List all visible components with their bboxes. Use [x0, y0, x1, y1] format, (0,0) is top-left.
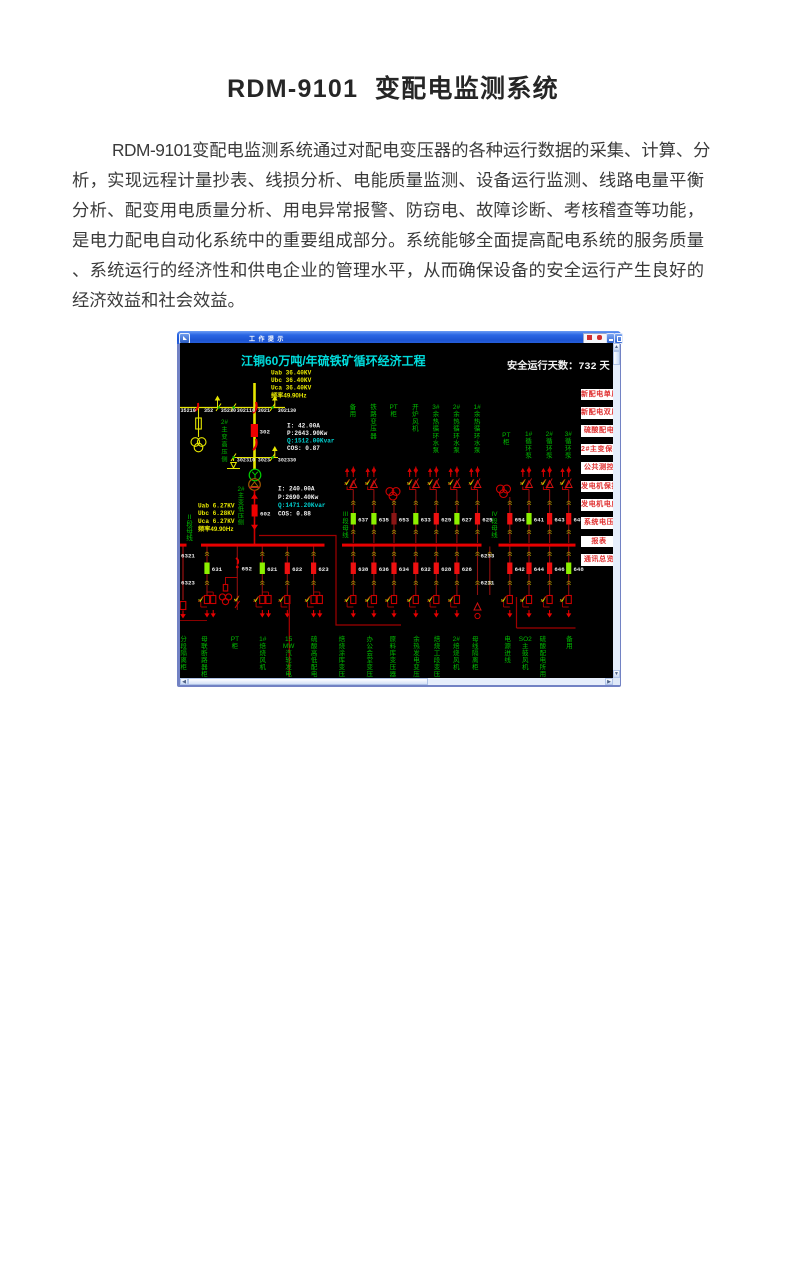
- svg-text:644: 644: [534, 566, 545, 573]
- svg-text:1#余热循环水泵: 1#余热循环水泵: [473, 404, 481, 454]
- svg-text:Q:1471.20Kvar: Q:1471.20Kvar: [278, 502, 326, 509]
- svg-text:PT柜: PT柜: [389, 404, 397, 418]
- svg-text:3023: 3023: [258, 458, 270, 464]
- svg-text:648: 648: [574, 566, 585, 573]
- svg-text:IV段母线: IV段母线: [491, 511, 498, 539]
- svg-text:P:2643.90Kw: P:2643.90Kw: [287, 430, 328, 437]
- svg-text:1#循环泵: 1#循环泵: [525, 431, 533, 460]
- svg-text:35210: 35210: [181, 408, 196, 414]
- svg-text:653: 653: [399, 517, 410, 524]
- svg-text:643: 643: [554, 517, 565, 524]
- svg-text:629: 629: [441, 517, 452, 524]
- svg-text:III段母线: III段母线: [342, 511, 349, 539]
- svg-text:6231: 6231: [481, 580, 495, 587]
- svg-text:626: 626: [462, 566, 473, 573]
- svg-text:江铜60万吨/年硫铁矿循环经济工程: 江铜60万吨/年硫铁矿循环经济工程: [241, 353, 426, 368]
- svg-text:641: 641: [534, 517, 545, 524]
- svg-text:645: 645: [574, 517, 585, 524]
- svg-text:631: 631: [212, 566, 223, 573]
- svg-text:302310: 302310: [237, 458, 255, 464]
- svg-text:余热发电变压: 余热发电变压: [413, 634, 420, 678]
- svg-text:铁路变压器: 铁路变压器: [370, 402, 377, 440]
- svg-text:637: 637: [358, 517, 369, 524]
- svg-text:35230: 35230: [221, 408, 236, 414]
- svg-text:Uab 36.40KV: Uab 36.40KV: [271, 370, 312, 377]
- svg-text:635: 635: [379, 517, 390, 524]
- svg-text:642: 642: [515, 566, 526, 573]
- svg-text:硫酸配电所用: 硫酸配电所用: [540, 634, 547, 678]
- svg-text:原料库变压器: 原料库变压器: [390, 635, 397, 678]
- svg-text:6233: 6233: [481, 553, 495, 560]
- svg-text:633: 633: [421, 517, 432, 524]
- svg-text:2#循环泵: 2#循环泵: [546, 431, 554, 460]
- svg-text:焙烧工段变压: 焙烧工段变压: [434, 634, 441, 678]
- svg-text:Uca 36.40KV: Uca 36.40KV: [271, 385, 312, 392]
- svg-text:2#主变高压侧: 2#主变高压侧: [221, 419, 228, 464]
- svg-text:Ubc 36.40KV: Ubc 36.40KV: [271, 377, 312, 384]
- svg-text:352: 352: [204, 408, 213, 414]
- svg-text:654: 654: [515, 517, 526, 524]
- svg-text:2#焙烧风机: 2#焙烧风机: [453, 636, 461, 671]
- svg-text:2#主变低压侧: 2#主变低压侧: [238, 486, 245, 527]
- svg-text:焙烧涂库变压: 焙烧涂库变压: [339, 634, 346, 678]
- svg-text:电源进线: 电源进线: [504, 634, 511, 664]
- svg-text:分段隔离柜: 分段隔离柜: [180, 634, 187, 671]
- svg-text:6323: 6323: [181, 580, 195, 587]
- svg-text:646: 646: [554, 566, 565, 573]
- svg-text:开炉风机: 开炉风机: [412, 403, 419, 433]
- svg-text:II段母线: II段母线: [186, 514, 193, 542]
- svg-text:625: 625: [482, 517, 493, 524]
- svg-text:Uca 6.27KV: Uca 6.27KV: [198, 518, 235, 525]
- svg-text:636: 636: [379, 566, 390, 573]
- svg-text:634: 634: [399, 566, 410, 573]
- svg-text:621: 621: [267, 566, 278, 573]
- svg-text:备用: 备用: [566, 634, 573, 650]
- svg-text:I: 240.00A: I: 240.00A: [278, 486, 315, 493]
- svg-text:母联断路器柜: 母联断路器柜: [201, 635, 208, 678]
- svg-text:安全运行天数：732 天: 安全运行天数：732 天: [507, 359, 610, 373]
- svg-text:P:2690.40Kw: P:2690.40Kw: [278, 494, 319, 501]
- svg-text:Uab 6.27KV: Uab 6.27KV: [198, 503, 235, 510]
- svg-text:638: 638: [358, 566, 369, 573]
- svg-text:硫酸高低配电: 硫酸高低配电: [311, 634, 318, 678]
- svg-text:备用: 备用: [350, 402, 357, 418]
- svg-text:15MW汽轮发电: 15MW汽轮发电: [283, 636, 295, 678]
- svg-text:Ubc 6.28KV: Ubc 6.28KV: [198, 510, 235, 517]
- svg-text:3021: 3021: [258, 408, 270, 414]
- svg-text:COS: 0.87: COS: 0.87: [287, 445, 320, 452]
- svg-text:622: 622: [292, 566, 303, 573]
- svg-text:2#余热循环水泵: 2#余热循环水泵: [453, 404, 461, 454]
- svg-text:302110: 302110: [237, 408, 255, 414]
- svg-text:627: 627: [462, 517, 473, 524]
- svg-text:623: 623: [318, 566, 329, 573]
- svg-text:频率49.90Hz: 频率49.90Hz: [198, 525, 233, 533]
- svg-text:I: 42.00A: I: 42.00A: [287, 423, 320, 430]
- svg-text:SO2主鼓风机: SO2主鼓风机: [519, 636, 532, 671]
- svg-text:6321: 6321: [181, 553, 195, 560]
- svg-text:PT柜: PT柜: [502, 432, 510, 446]
- svg-text:办公会堂变压: 办公会堂变压: [366, 634, 373, 678]
- svg-text:602: 602: [260, 511, 271, 518]
- svg-text:1#焙烧风机: 1#焙烧风机: [259, 636, 267, 671]
- svg-text:3#余热循环水泵: 3#余热循环水泵: [432, 404, 440, 454]
- svg-text:3#循环泵: 3#循环泵: [565, 431, 573, 460]
- svg-text:302: 302: [260, 429, 271, 436]
- svg-text:PT柜: PT柜: [231, 636, 239, 650]
- svg-text:632: 632: [421, 566, 432, 573]
- svg-text:652: 652: [242, 566, 253, 573]
- svg-text:频率49.90Hz: 频率49.90Hz: [271, 391, 306, 399]
- svg-text:Q:1512.00Kvar: Q:1512.00Kvar: [287, 438, 335, 445]
- svg-text:COS: 0.88: COS: 0.88: [278, 510, 311, 517]
- svg-text:母线隔离柜: 母线隔离柜: [472, 635, 479, 671]
- svg-text:302330: 302330: [278, 458, 296, 464]
- svg-text:628: 628: [441, 566, 452, 573]
- svg-text:302130: 302130: [278, 408, 296, 414]
